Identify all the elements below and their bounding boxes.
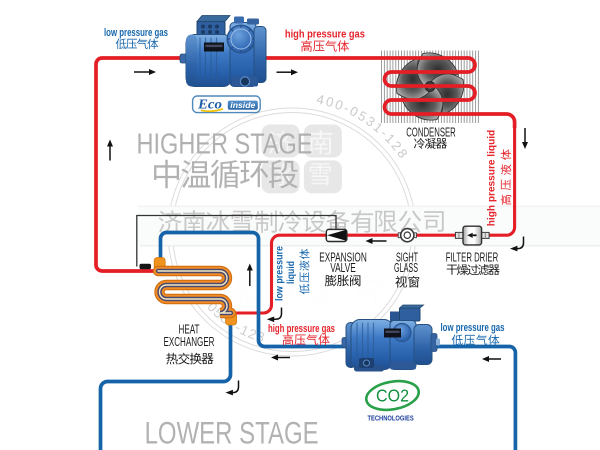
svg-text:VALVE: VALVE (330, 260, 356, 275)
svg-text:CO2: CO2 (376, 386, 409, 406)
svg-text:FILTER DRIER: FILTER DRIER (446, 249, 498, 264)
svg-text:low pressure gas: low pressure gas (104, 27, 168, 39)
svg-text:LOWER STAGE: LOWER STAGE (145, 415, 319, 450)
svg-text:GLASS: GLASS (394, 260, 418, 275)
svg-text:EXCHANGER: EXCHANGER (164, 334, 215, 349)
svg-text:Eco: Eco (197, 96, 222, 111)
svg-text:high pressure gas: high pressure gas (285, 28, 365, 40)
svg-text:TECHNOLOGIES: TECHNOLOGIES (367, 414, 413, 423)
svg-text:low pressure gas: low pressure gas (441, 322, 505, 334)
svg-text:inside: inside (230, 101, 255, 110)
svg-text:CONDENSER: CONDENSER (406, 125, 456, 140)
svg-text:liquid: liquid (285, 261, 297, 284)
svg-text:HIGHER STAGE: HIGHER STAGE (137, 129, 313, 161)
svg-text:low pressure: low pressure (274, 246, 286, 301)
svg-text:high pressure liquid: high pressure liquid (486, 130, 498, 227)
svg-text:high pressure gas: high pressure gas (268, 323, 335, 335)
